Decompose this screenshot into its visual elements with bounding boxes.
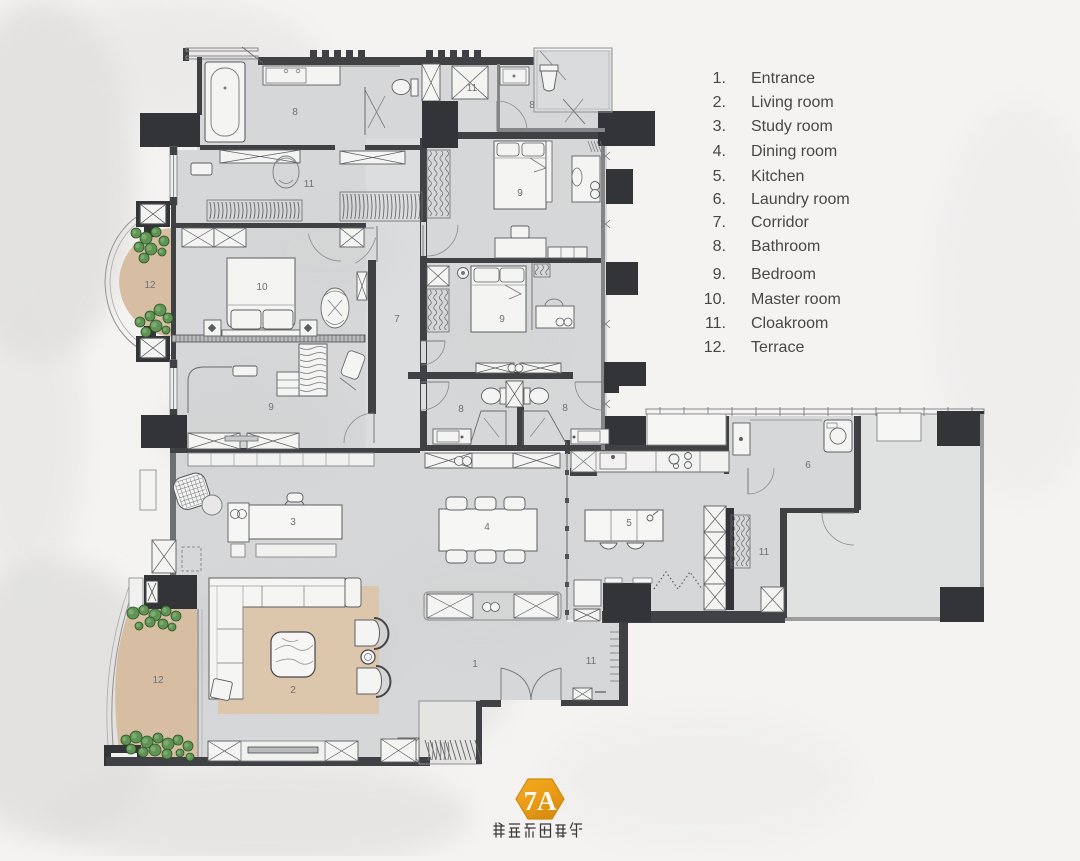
svg-text:10: 10 — [256, 282, 268, 293]
svg-text:7.: 7. — [713, 214, 726, 231]
svg-text:2.: 2. — [713, 94, 726, 111]
svg-text:Dining room: Dining room — [751, 143, 837, 160]
svg-text:4.: 4. — [713, 143, 726, 160]
svg-text:11: 11 — [304, 179, 315, 190]
svg-text:Cloakroom: Cloakroom — [751, 315, 828, 332]
svg-text:6.: 6. — [713, 191, 726, 208]
svg-text:8.: 8. — [713, 238, 726, 255]
svg-text:7: 7 — [394, 314, 400, 325]
svg-text:11.: 11. — [705, 315, 726, 332]
svg-text:2: 2 — [290, 685, 296, 696]
svg-text:3: 3 — [290, 517, 296, 528]
svg-text:8: 8 — [562, 403, 568, 414]
svg-text:1.: 1. — [713, 70, 726, 87]
svg-text:Entrance: Entrance — [751, 70, 815, 87]
svg-text:11: 11 — [586, 656, 597, 667]
svg-text:1: 1 — [472, 659, 478, 670]
svg-text:11: 11 — [467, 83, 478, 94]
svg-text:5: 5 — [626, 518, 632, 529]
svg-text:11: 11 — [759, 547, 770, 558]
svg-text:12: 12 — [144, 280, 156, 291]
svg-text:Laundry room: Laundry room — [751, 191, 850, 208]
svg-text:Living room: Living room — [751, 94, 834, 111]
svg-text:12.: 12. — [704, 339, 726, 356]
svg-text:12: 12 — [152, 675, 164, 686]
svg-text:Master room: Master room — [751, 291, 841, 308]
svg-text:Bedroom: Bedroom — [751, 266, 816, 283]
svg-text:6: 6 — [805, 460, 811, 471]
svg-text:9: 9 — [517, 188, 523, 199]
svg-text:Corridor: Corridor — [751, 214, 809, 231]
svg-text:8: 8 — [529, 100, 535, 111]
svg-text:9: 9 — [268, 402, 274, 413]
svg-text:4: 4 — [484, 522, 490, 533]
svg-text:Terrace: Terrace — [751, 339, 804, 356]
svg-text:5.: 5. — [713, 168, 726, 185]
svg-text:3.: 3. — [713, 118, 726, 135]
svg-text:10.: 10. — [704, 291, 726, 308]
svg-text:7A: 7A — [524, 786, 558, 816]
svg-text:Kitchen: Kitchen — [751, 168, 804, 185]
svg-text:9: 9 — [499, 314, 505, 325]
svg-text:9.: 9. — [713, 266, 726, 283]
svg-text:Bathroom: Bathroom — [751, 238, 820, 255]
svg-text:Study room: Study room — [751, 118, 833, 135]
svg-text:8: 8 — [458, 404, 464, 415]
svg-text:8: 8 — [292, 107, 298, 118]
